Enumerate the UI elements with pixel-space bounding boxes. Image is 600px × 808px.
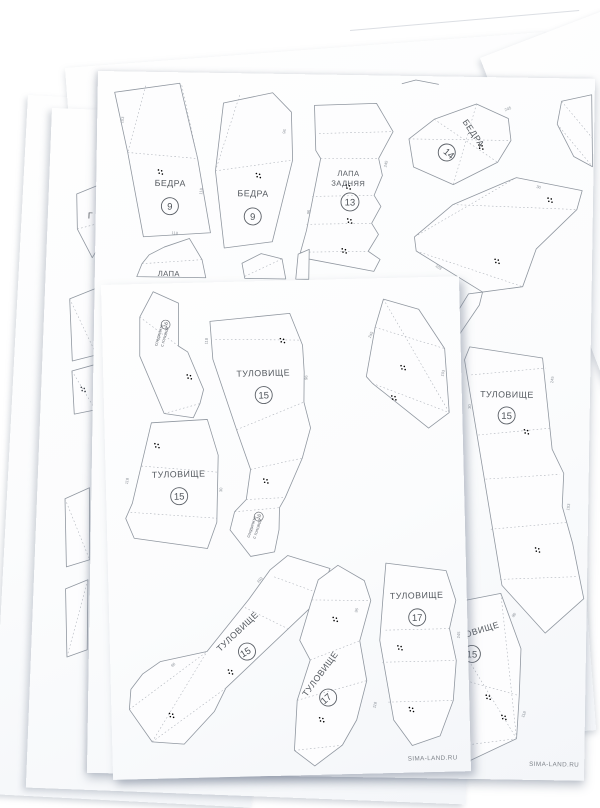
edge-measure: 103	[565, 502, 571, 510]
front-pattern-drawing: соедините с головой 16 ТУЛОВИЩЕ 15 соеди…	[101, 276, 471, 780]
part-number: 15	[174, 492, 185, 503]
edge-measure: 118	[372, 701, 379, 709]
brand-watermark: SIMA-LAND.RU	[408, 754, 458, 762]
part-label: БЕДРА	[155, 178, 186, 188]
pattern-part-torso-left: ТУЛОВИЩЕ 15 118 30	[122, 419, 225, 550]
pattern-part-torso-strip: ТУЛОВИЩЕ 17 118 245	[368, 561, 464, 746]
part-label: ТУЛОВИЩЕ	[390, 590, 444, 601]
pattern-part-hips-left: БЕДРА 9 103 118 118	[112, 82, 212, 238]
pattern-part-polygon: 245 103	[364, 298, 449, 430]
photo-canvas: { "sheets": { "back_pattern": { "waterma…	[0, 0, 600, 800]
edge-measure: 245	[383, 159, 389, 167]
edge-measure: 118	[171, 230, 178, 235]
part-label: ЛАПА	[337, 169, 360, 178]
edge-measure: 30	[467, 403, 472, 409]
edge-measure: 245	[456, 631, 461, 639]
part-label: Г	[88, 210, 94, 220]
part-number: 15	[501, 411, 512, 422]
pattern-part-note-top: соедините с головой 16	[138, 291, 204, 420]
pattern-part-cutoff	[557, 94, 594, 167]
edge-measure: 245	[504, 105, 513, 113]
edge-measure: 118	[124, 477, 130, 485]
pattern-part-cutoff	[296, 249, 309, 279]
part-label: ТУЛОВИЩЕ	[152, 469, 206, 480]
pattern-part-cutoff	[63, 579, 90, 658]
pattern-part-torso-tall: ТУЛОВИЩЕ 15 245 103 30	[460, 347, 587, 634]
pattern-part-hips-right: БЕДРА 9 96	[214, 92, 293, 249]
part-label: ТУЛОВИЩЕ	[480, 389, 534, 400]
pattern-part-torso-top: ТУЛОВИЩЕ 15 соедините с головой 16 118 9…	[203, 313, 314, 557]
pattern-part-paw-cut: ЛАПА	[137, 238, 207, 279]
edge-measure: 118	[520, 710, 527, 718]
part-number: 9	[167, 202, 172, 213]
pattern-part-hips-small: БЕДРА 14 245	[408, 103, 512, 186]
pattern-part-cutoff	[62, 487, 92, 568]
edge-measure: 96	[510, 611, 517, 618]
pattern-part-rear-paw: ЛАПА ЗАДНЯЯ 13 245 96	[299, 102, 394, 271]
part-label: ЛАПА	[158, 269, 181, 278]
edge-measure: 245	[549, 375, 555, 383]
pattern-sliver	[402, 80, 439, 85]
paper-sheet-front-pattern: соедините с головой 16 ТУЛОВИЩЕ 15 соеди…	[101, 276, 471, 780]
pattern-part-cutoff	[242, 253, 286, 279]
brand-watermark: SIMA-LAND.RU	[529, 761, 579, 769]
edge-measure: 118	[203, 337, 208, 344]
part-label: ЗАДНЯЯ	[331, 179, 365, 189]
edge-measure: 30	[218, 487, 223, 493]
part-label: ТУЛОВИЩЕ	[236, 367, 290, 378]
part-number: 13	[345, 197, 356, 208]
edge-measure: 96	[303, 375, 308, 381]
part-number: 15	[258, 390, 269, 401]
paper-edge-highlight	[350, 10, 579, 31]
part-number: 9	[250, 212, 255, 223]
part-label: БЕДРА	[237, 188, 268, 198]
part-number: 17	[412, 613, 423, 624]
